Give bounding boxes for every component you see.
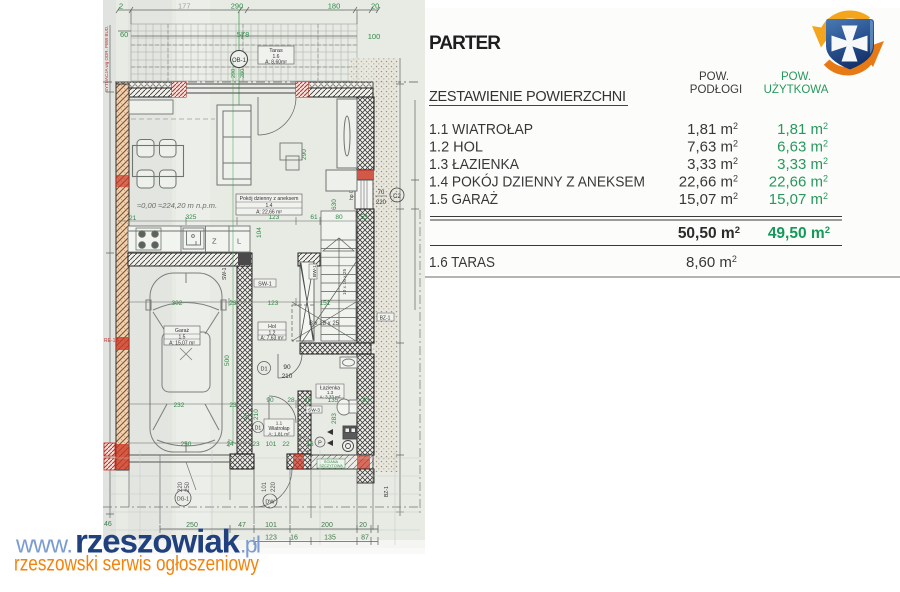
svg-text:630: 630 <box>331 199 338 210</box>
svg-text:C2: C2 <box>393 194 401 200</box>
svg-text:60: 60 <box>120 30 128 39</box>
svg-text:22: 22 <box>282 441 290 448</box>
svg-text:B x 18 x 25: B x 18 x 25 <box>309 321 340 327</box>
svg-text:21: 21 <box>129 215 137 222</box>
svg-text:43: 43 <box>362 397 370 404</box>
svg-text:325: 325 <box>186 214 197 221</box>
svg-text:123: 123 <box>268 300 279 307</box>
svg-text:A: 22,66 m²: A: 22,66 m² <box>256 210 282 216</box>
svg-text:290: 290 <box>231 2 244 11</box>
svg-text:101: 101 <box>265 522 277 529</box>
svg-text:16: 16 <box>306 441 314 448</box>
svg-text:DG-1: DG-1 <box>177 497 189 503</box>
svg-text:100: 100 <box>368 32 381 41</box>
svg-text:POW.: POW. <box>781 71 811 83</box>
svg-text:1.6 TARAS: 1.6 TARAS <box>429 254 495 271</box>
svg-text:49,50 m2: 49,50 m2 <box>768 225 830 242</box>
svg-text:200: 200 <box>321 522 333 529</box>
svg-text:283: 283 <box>331 413 338 424</box>
svg-text:20: 20 <box>359 522 367 529</box>
svg-text:1.2 HOL: 1.2 HOL <box>429 139 483 156</box>
svg-text:A: 15,07 m²: A: 15,07 m² <box>169 341 195 347</box>
svg-text:24: 24 <box>226 441 234 448</box>
svg-text:1,81 m2: 1,81 m2 <box>687 121 738 138</box>
svg-text:UŻYTKOWA: UŻYTKOWA <box>764 83 829 96</box>
svg-text:A: 1,81 m²: A: 1,81 m² <box>268 432 290 437</box>
svg-text:BW-1: BW-1 <box>312 265 318 277</box>
svg-text:104: 104 <box>256 227 263 238</box>
svg-text:6,63 m2: 6,63 m2 <box>777 139 828 156</box>
svg-text:15,07 m2: 15,07 m2 <box>679 191 738 208</box>
svg-text:90: 90 <box>266 397 274 404</box>
svg-text:Z: Z <box>212 237 217 246</box>
svg-text:15,07 m2: 15,07 m2 <box>769 191 828 208</box>
svg-text:22,66 m2: 22,66 m2 <box>769 174 828 191</box>
svg-text:101: 101 <box>262 481 268 492</box>
svg-text:16: 16 <box>304 397 312 404</box>
svg-text:ZESTAWIENIE POWIERZCHNI: ZESTAWIENIE POWIERZCHNI <box>429 89 626 105</box>
svg-text:≈0,00 ≈224,20 m n.p.m.: ≈0,00 ≈224,20 m n.p.m. <box>137 201 217 210</box>
svg-text:SYTUACJA wg ODR. PBW BUD.: SYTUACJA wg ODR. PBW BUD. <box>104 26 109 92</box>
svg-text:1.3 ŁAZIENKA: 1.3 ŁAZIENKA <box>429 156 519 173</box>
svg-text:90: 90 <box>244 412 251 420</box>
svg-text:80: 80 <box>335 214 343 221</box>
svg-text:1.5 GARAŻ: 1.5 GARAŻ <box>429 190 498 208</box>
svg-text:PODŁOGI: PODŁOGI <box>690 84 742 96</box>
svg-text:A: 7,63 m²: A: 7,63 m² <box>260 336 283 342</box>
svg-text:210: 210 <box>253 409 260 420</box>
svg-text:101: 101 <box>266 441 277 448</box>
svg-text:SW-1: SW-1 <box>258 282 272 288</box>
svg-text:1.1 WIATROŁAP: 1.1 WIATROŁAP <box>429 121 533 138</box>
svg-text:POW.: POW. <box>699 71 729 83</box>
svg-text:A: 8,60m²: A: 8,60m² <box>265 60 287 66</box>
svg-text:70: 70 <box>378 190 385 196</box>
svg-text:1,81 m2: 1,81 m2 <box>777 121 828 138</box>
svg-text:180: 180 <box>328 2 341 11</box>
svg-text:10 x 16 x 25: 10 x 16 x 25 <box>342 269 348 295</box>
svg-text:250: 250 <box>181 441 192 448</box>
svg-text:290: 290 <box>231 69 237 78</box>
svg-text:280: 280 <box>240 69 246 78</box>
svg-text:1.4: 1.4 <box>266 203 273 209</box>
svg-text:220: 220 <box>376 200 387 206</box>
svg-text:210: 210 <box>282 373 293 380</box>
svg-text:23: 23 <box>229 402 237 409</box>
svg-text:135: 135 <box>324 535 336 542</box>
svg-text:28: 28 <box>287 397 295 404</box>
svg-text:DW: DW <box>265 500 275 506</box>
svg-text:D1: D1 <box>255 426 262 432</box>
svg-text:SW-1: SW-1 <box>222 267 228 280</box>
svg-text:500: 500 <box>224 355 231 366</box>
svg-text:8,60 m2: 8,60 m2 <box>686 254 737 271</box>
svg-text:22,66 m2: 22,66 m2 <box>679 174 738 191</box>
svg-text:151: 151 <box>320 300 331 307</box>
svg-text:16: 16 <box>290 535 298 542</box>
svg-text:BZ-1: BZ-1 <box>380 316 391 322</box>
svg-text:P: P <box>318 441 322 447</box>
svg-text:135: 135 <box>328 397 339 404</box>
svg-text:L: L <box>237 237 241 246</box>
svg-text:7,63 m2: 7,63 m2 <box>687 139 738 156</box>
svg-text:1.1: 1.1 <box>276 421 283 426</box>
svg-text:Hol: Hol <box>268 324 276 330</box>
svg-text:2: 2 <box>119 2 123 11</box>
svg-text:OB-1: OB-1 <box>232 58 247 64</box>
svg-text:1.4 POKÓJ DZIENNY Z ANEKSEM: 1.4 POKÓJ DZIENNY Z ANEKSEM <box>429 174 645 191</box>
svg-text:123: 123 <box>265 535 277 542</box>
svg-text:Garaż: Garaż <box>175 328 190 334</box>
svg-text:SW-3: SW-3 <box>308 408 320 414</box>
svg-text:SZCZYTOWA: SZCZYTOWA <box>319 464 343 468</box>
svg-text:23: 23 <box>229 300 237 307</box>
svg-text:RE-1S: RE-1S <box>104 338 119 344</box>
svg-text:3,33 m2: 3,33 m2 <box>687 156 738 173</box>
svg-text:61: 61 <box>310 214 318 221</box>
svg-text:rzeszowski serwis ogłoszeniowy: rzeszowski serwis ogłoszeniowy <box>14 553 259 576</box>
svg-text:578: 578 <box>237 30 250 39</box>
svg-text:53: 53 <box>360 214 368 221</box>
svg-text:50,50 m2: 50,50 m2 <box>678 225 740 242</box>
svg-text:23: 23 <box>252 441 260 448</box>
svg-text:90: 90 <box>283 364 291 371</box>
svg-text:177: 177 <box>178 2 191 11</box>
svg-text:PARTER: PARTER <box>429 33 501 54</box>
svg-text:220: 220 <box>271 481 277 492</box>
svg-text:3,33 m2: 3,33 m2 <box>777 156 828 173</box>
svg-text:Pokój dzienny z aneksem: Pokój dzienny z aneksem <box>240 196 299 202</box>
svg-text:87: 87 <box>361 535 369 542</box>
svg-text:232: 232 <box>174 402 185 409</box>
svg-text:20: 20 <box>371 2 379 11</box>
svg-text:D1: D1 <box>260 367 267 373</box>
svg-text:BZ-1: BZ-1 <box>384 486 390 497</box>
svg-text:hp 0: hp 0 <box>349 190 355 200</box>
